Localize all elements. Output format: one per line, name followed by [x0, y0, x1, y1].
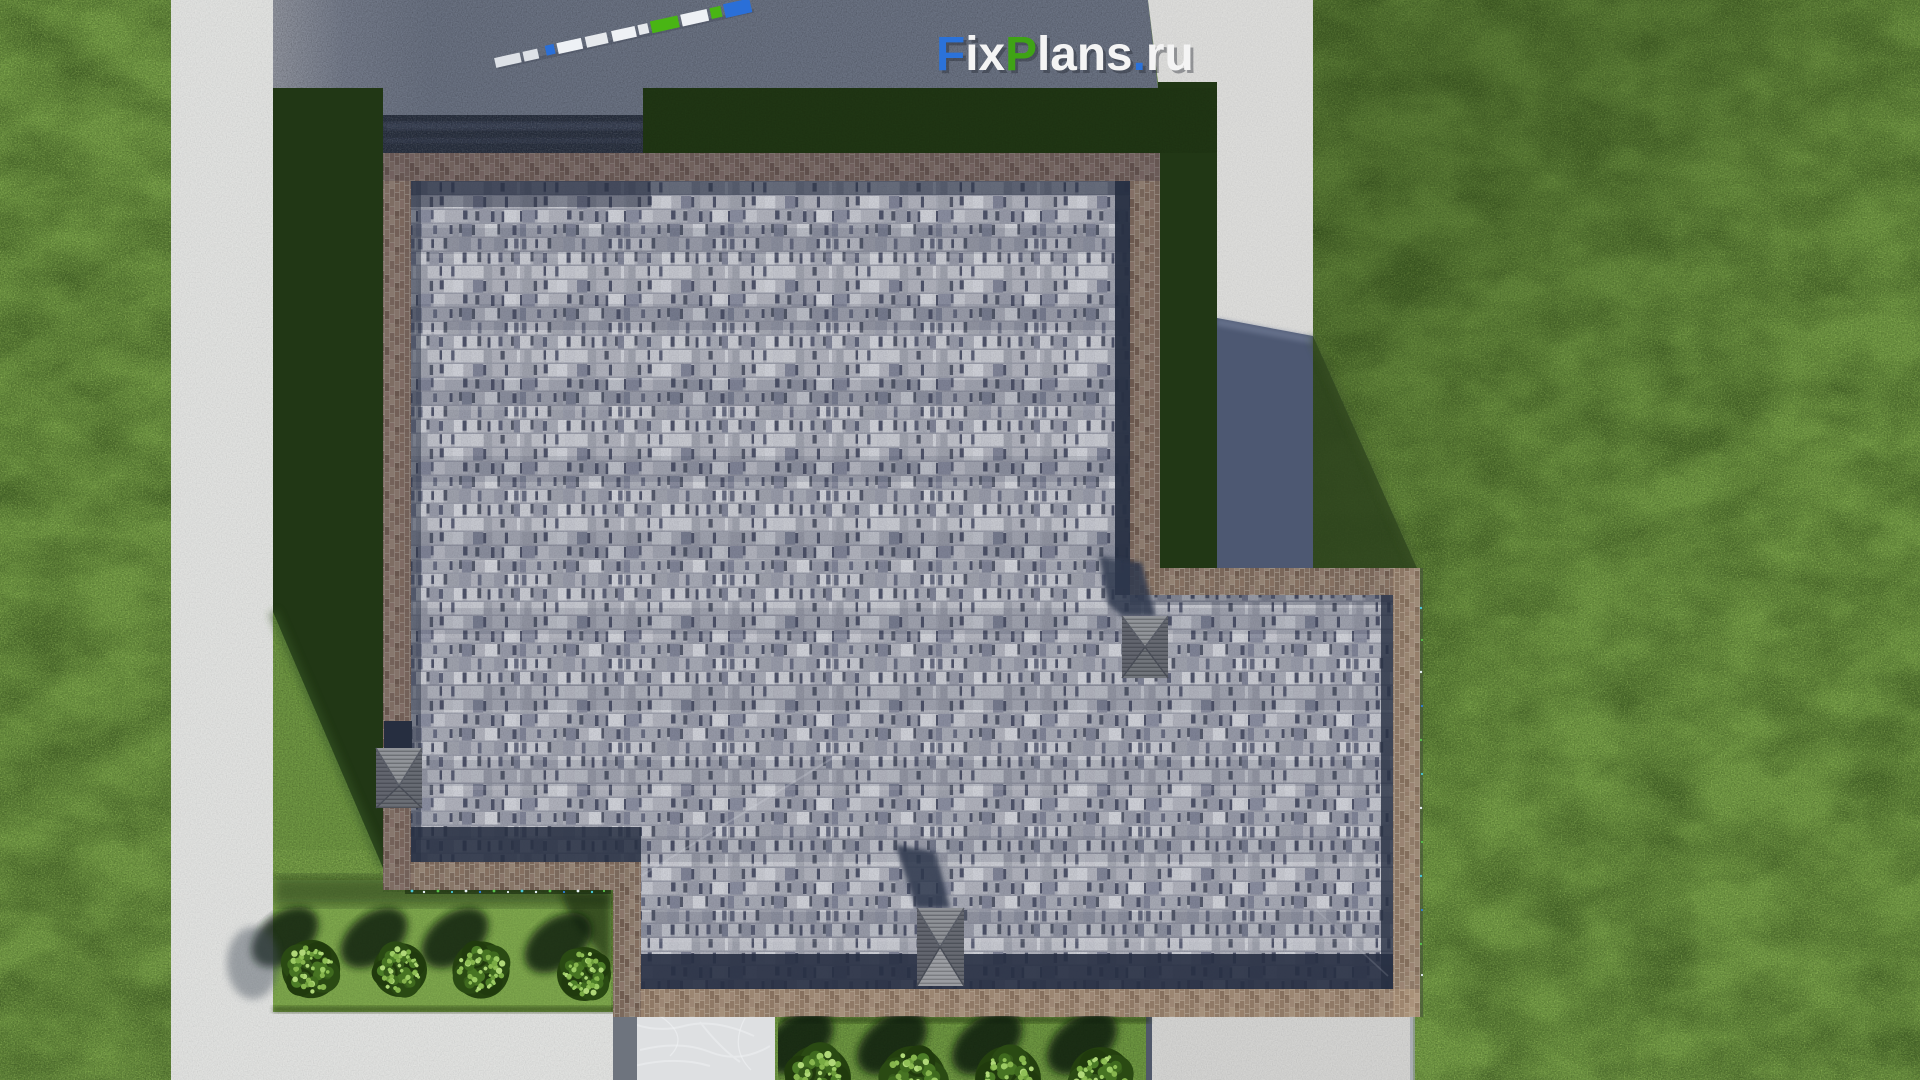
- svg-text:FixPlans.ru: FixPlans.ru: [936, 28, 1194, 81]
